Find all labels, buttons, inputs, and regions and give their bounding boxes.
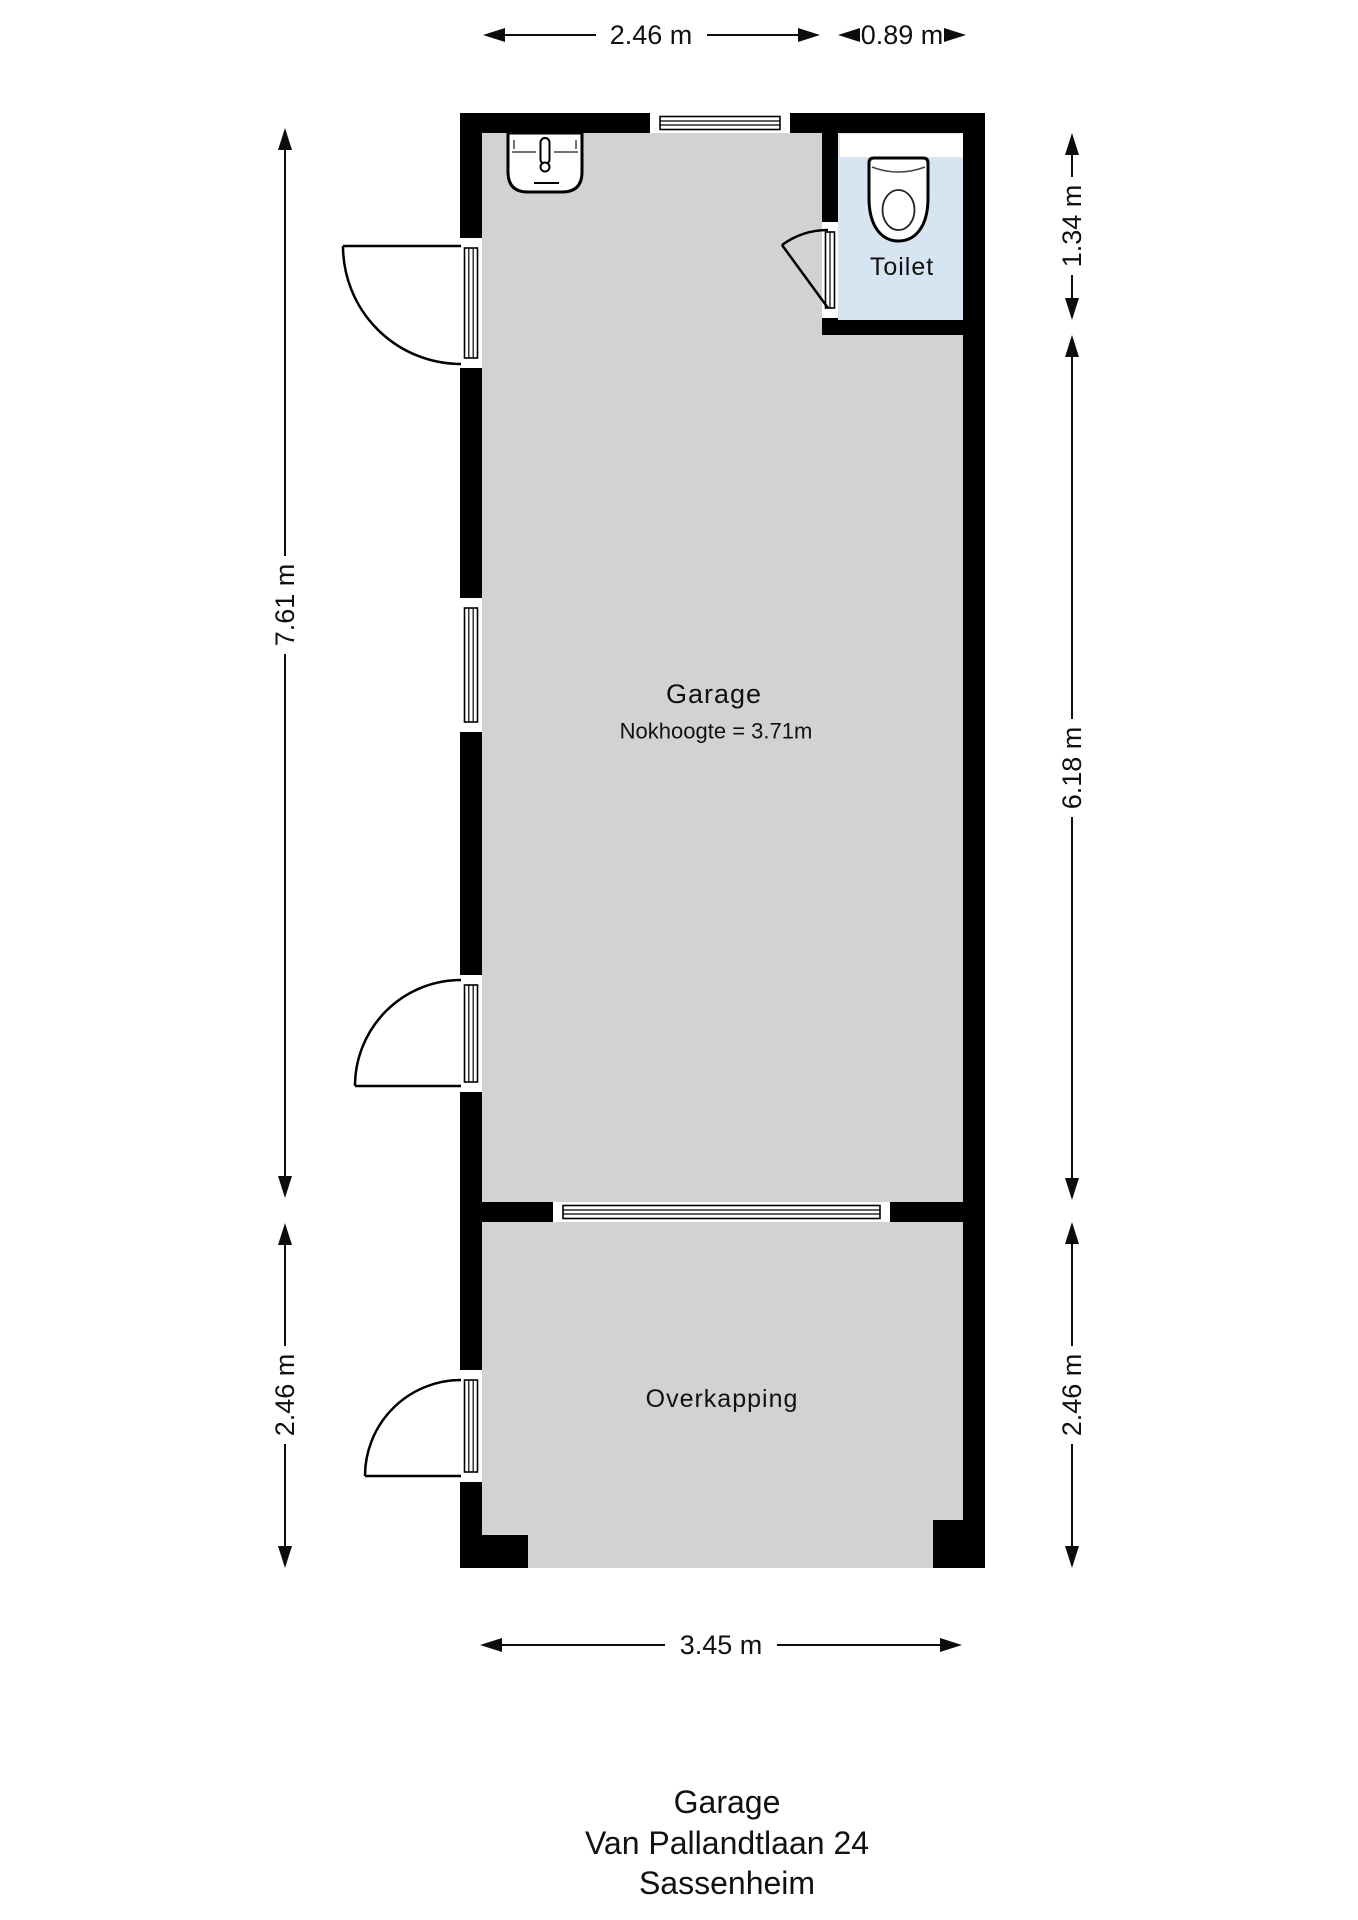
window-top (650, 113, 790, 133)
bottom-left-corner-post (460, 1535, 528, 1568)
toilet-bottom-wall (822, 320, 965, 335)
title-line-2: Van Pallandtlaan 24 (585, 1825, 869, 1861)
room-label-toilet: Toilet (870, 253, 934, 281)
room-label-garage: Garage (666, 679, 762, 709)
sink-fixture (508, 133, 582, 192)
bottom-right-corner-post (933, 1520, 985, 1568)
door-opening-middle-left (460, 975, 482, 1092)
title-line-1: Garage (674, 1784, 781, 1820)
dimension-label-left-garage: 7.61 m (270, 564, 300, 647)
dimension-right-toilet: 1.34 m (1057, 133, 1087, 320)
right-wall (963, 113, 985, 1568)
door-swing-middle-left (355, 980, 461, 1086)
door-swing-top-left (343, 246, 461, 364)
dimension-right-garage: 6.18 m (1057, 335, 1087, 1200)
dimension-label-right-garage: 6.18 m (1057, 727, 1087, 810)
door-opening-bottom-left (460, 1370, 482, 1482)
door-swing-bottom-left (365, 1380, 461, 1476)
title-line-3: Sassenheim (639, 1865, 815, 1901)
window-left (460, 598, 482, 732)
room-label-overkapping: Overkapping (646, 1385, 799, 1413)
dimension-bottom-width: 3.45 m (480, 1630, 962, 1660)
dimension-top-toilet: 0.89 m (838, 20, 966, 50)
dimension-label-bottom: 3.45 m (680, 1630, 763, 1660)
window-divider (553, 1202, 890, 1222)
door-opening-top-left (460, 238, 482, 368)
dimension-label-top-toilet: 0.89 m (861, 20, 944, 50)
dimension-label-top-garage: 2.46 m (610, 20, 693, 50)
title-block: Garage Van Pallandtlaan 24 Sassenheim (585, 1784, 869, 1901)
floor-plan-drawing: 2.46 m 0.89 m 7.61 m 2.46 m 1.34 m 6.18 (0, 0, 1358, 1920)
dimension-left-garage: 7.61 m (270, 128, 300, 1198)
dimension-label-right-overkapping: 2.46 m (1057, 1354, 1087, 1437)
dimension-right-overkapping: 2.46 m (1057, 1222, 1087, 1568)
dimension-left-overkapping: 2.46 m (270, 1223, 300, 1568)
room-note-garage: Nokhoogte = 3.71m (620, 719, 813, 744)
toilet-fixture (869, 158, 928, 241)
floor-plan-canvas: 2.46 m 0.89 m 7.61 m 2.46 m 1.34 m 6.18 (0, 0, 1358, 1920)
dimension-label-left-overkapping: 2.46 m (270, 1354, 300, 1437)
toilet-cistern-shelf (840, 134, 963, 157)
dimension-label-right-toilet: 1.34 m (1057, 185, 1087, 268)
dimension-top-garage: 2.46 m (483, 20, 820, 50)
